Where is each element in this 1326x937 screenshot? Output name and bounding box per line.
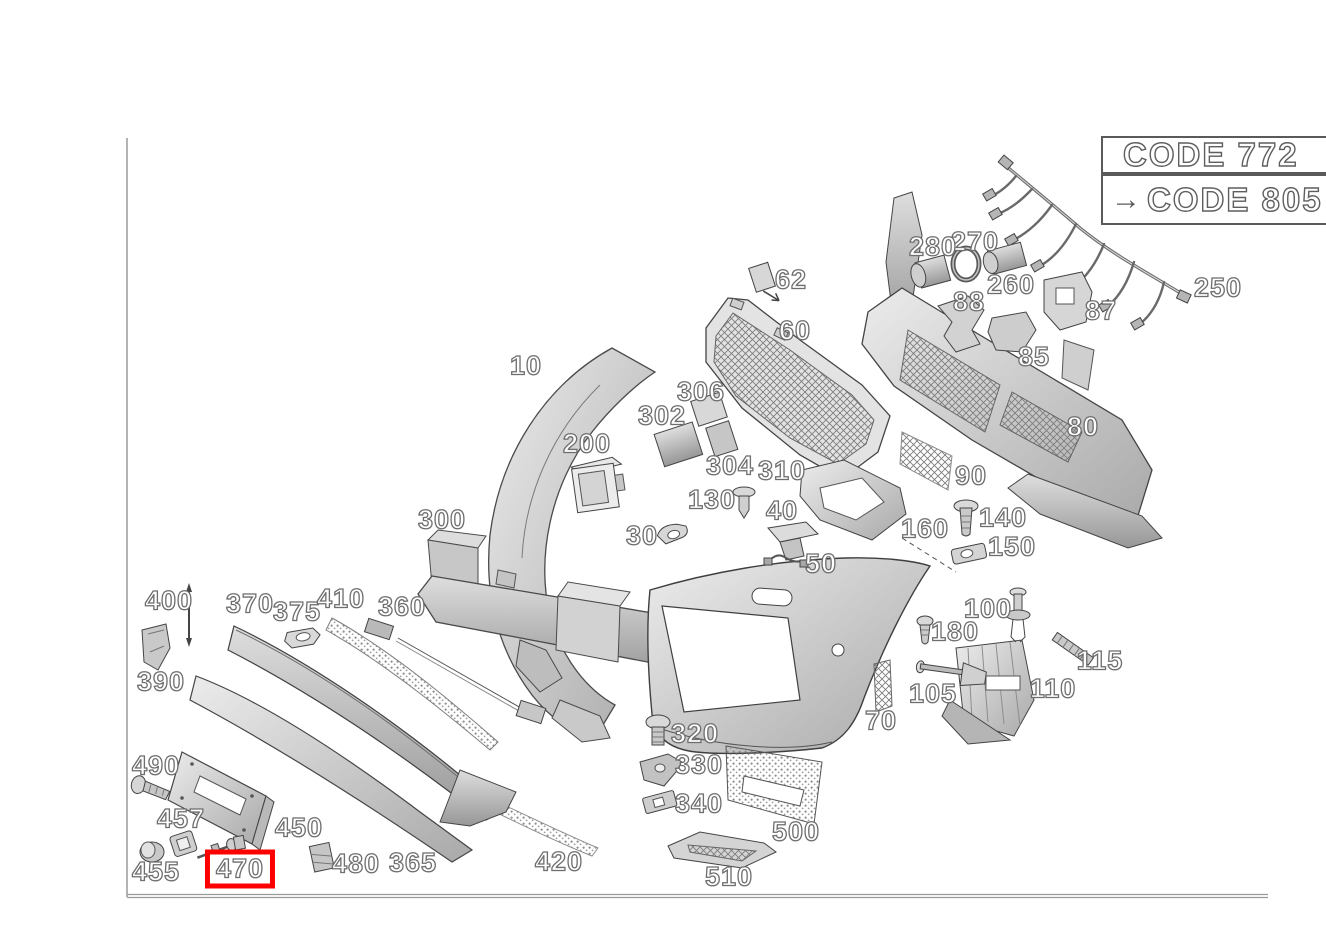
part-label-400[interactable]: 400: [145, 588, 193, 615]
part-label-30[interactable]: 30: [626, 523, 658, 550]
part-label-470[interactable]: 470: [205, 850, 275, 889]
part-label-455[interactable]: 455: [132, 859, 180, 886]
parts-diagram-page: CODE 772 → CODE 805 10304050606270808587…: [0, 0, 1326, 937]
part-label-340[interactable]: 340: [675, 791, 723, 818]
part-label-375[interactable]: 375: [273, 599, 321, 626]
part-label-70[interactable]: 70: [865, 708, 897, 735]
part-label-365[interactable]: 365: [389, 850, 437, 877]
part-label-490[interactable]: 490: [132, 753, 180, 780]
code-772-box: CODE 772: [1101, 136, 1326, 174]
part-label-480[interactable]: 480: [332, 851, 380, 878]
part-label-115[interactable]: 115: [1077, 648, 1124, 675]
part-label-140[interactable]: 140: [979, 505, 1027, 532]
part-90-drawing: [900, 432, 952, 490]
code-805-box: → CODE 805: [1101, 174, 1326, 225]
part-label-200[interactable]: 200: [563, 431, 611, 458]
code-772-label: CODE 772: [1123, 136, 1299, 174]
part-label-110[interactable]: 110: [1030, 676, 1077, 703]
part-label-304[interactable]: 304: [706, 453, 754, 480]
part-label-310[interactable]: 310: [758, 458, 806, 485]
part-label-105[interactable]: 105: [909, 681, 957, 708]
part-label-180[interactable]: 180: [931, 619, 979, 646]
part-label-370[interactable]: 370: [226, 591, 274, 618]
part-label-302[interactable]: 302: [638, 403, 686, 430]
part-label-410[interactable]: 410: [317, 586, 365, 613]
part-label-90[interactable]: 90: [955, 463, 987, 490]
code-805-label: CODE 805: [1147, 181, 1323, 219]
part-label-510[interactable]: 510: [705, 864, 753, 891]
part-label-457[interactable]: 457: [157, 806, 205, 833]
part-label-300[interactable]: 300: [418, 507, 466, 534]
part-label-130[interactable]: 130: [688, 487, 736, 514]
part-label-330[interactable]: 330: [675, 752, 723, 779]
part-label-10[interactable]: 10: [510, 353, 542, 380]
part-label-390[interactable]: 390: [137, 669, 185, 696]
part-label-306[interactable]: 306: [677, 379, 725, 406]
part-label-80[interactable]: 80: [1067, 414, 1099, 441]
part-310-drawing: [800, 460, 906, 540]
part-label-250[interactable]: 250: [1194, 275, 1242, 302]
part-label-360[interactable]: 360: [378, 594, 426, 621]
part-label-270[interactable]: 270: [951, 229, 999, 256]
part-200-drawing: [571, 456, 627, 512]
part-label-85[interactable]: 85: [1018, 344, 1050, 371]
part-label-280[interactable]: 280: [909, 234, 957, 261]
part-label-60[interactable]: 60: [779, 318, 811, 345]
part-label-450[interactable]: 450: [275, 815, 323, 842]
part-label-87[interactable]: 87: [1085, 298, 1117, 325]
part-label-62[interactable]: 62: [775, 267, 807, 294]
part-label-420[interactable]: 420: [535, 849, 583, 876]
part-label-500[interactable]: 500: [772, 819, 820, 846]
part-label-50[interactable]: 50: [805, 551, 837, 578]
part-label-150[interactable]: 150: [988, 534, 1036, 561]
part-500-drawing: [726, 746, 822, 824]
part-label-320[interactable]: 320: [671, 721, 719, 748]
part-label-260[interactable]: 260: [987, 272, 1035, 299]
arrow-right-icon: →: [1111, 185, 1141, 215]
part-label-160[interactable]: 160: [901, 516, 949, 543]
part-label-88[interactable]: 88: [953, 289, 985, 316]
part-label-40[interactable]: 40: [766, 498, 798, 525]
